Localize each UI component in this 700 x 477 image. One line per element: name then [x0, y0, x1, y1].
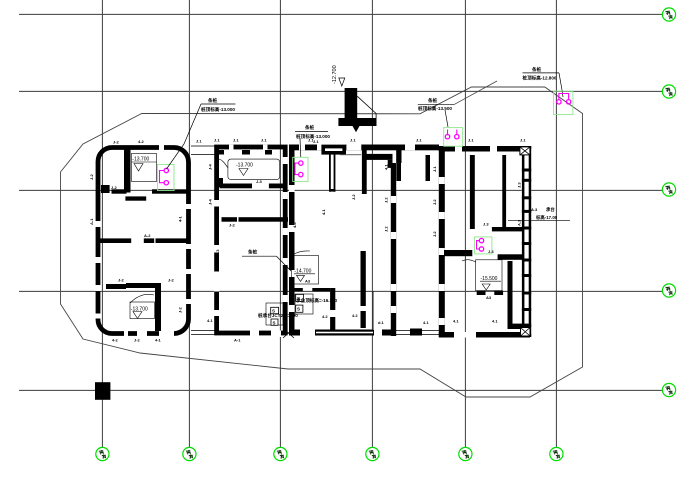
svg-text:J-2: J-2 [178, 306, 183, 313]
svg-text:J-3: J-3 [256, 179, 263, 184]
svg-text:J-2: J-2 [111, 185, 118, 190]
svg-text:J.1: J.1 [350, 138, 356, 143]
svg-text:J.1: J.1 [520, 138, 526, 143]
svg-text:d.1: d.1 [378, 320, 385, 325]
svg-text:4.1: 4.1 [423, 320, 429, 325]
svg-text:4-1: 4-1 [178, 215, 183, 222]
svg-text:J-2: J-2 [134, 338, 141, 343]
svg-text:桩顶标高-13.000: 桩顶标高-13.000 [201, 106, 235, 113]
svg-text:A-1: A-1 [89, 218, 94, 225]
svg-text:桩顶标高-12.800: 桩顶标高-12.800 [523, 75, 557, 82]
svg-text:J.2: J.2 [384, 226, 389, 232]
svg-text:A3: A3 [486, 295, 492, 300]
svg-text:4.5: 4.5 [292, 222, 297, 228]
svg-text:J-2: J-2 [128, 197, 135, 202]
svg-text:J.1: J.1 [308, 138, 314, 143]
svg-text:A-1: A-1 [234, 338, 241, 343]
svg-text:S: S [273, 320, 276, 325]
svg-text:4-2: 4-2 [112, 338, 119, 343]
svg-text:标高-17.00: 标高-17.00 [535, 214, 558, 221]
svg-text:A.3: A.3 [517, 219, 522, 226]
svg-text:-13.700: -13.700 [132, 156, 149, 162]
svg-text:条桩: 条桩 [305, 124, 315, 131]
svg-text:J-2: J-2 [113, 140, 120, 145]
svg-text:J.2: J.2 [432, 199, 437, 205]
svg-text:J.1: J.1 [468, 138, 474, 143]
svg-text:桩承台JCT2@=200: 桩承台JCT2@=200 [258, 312, 298, 319]
svg-text:4.1: 4.1 [384, 164, 389, 170]
svg-text:4.1: 4.1 [321, 209, 326, 215]
svg-text:A.3: A.3 [531, 207, 538, 212]
svg-text:4.1: 4.1 [492, 319, 498, 324]
svg-text:S: S [297, 307, 300, 312]
svg-text:J-2: J-2 [229, 223, 236, 228]
svg-text:J.1: J.1 [416, 138, 422, 143]
svg-text:A-3: A-3 [215, 293, 220, 300]
svg-text:4-2: 4-2 [138, 139, 145, 144]
svg-text:J.3: J.3 [488, 249, 494, 254]
svg-text:条桩: 条桩 [248, 249, 258, 256]
svg-text:A3: A3 [305, 279, 311, 284]
svg-text:J.3: J.3 [517, 182, 522, 188]
svg-text:J.1: J.1 [233, 138, 239, 143]
svg-text:承台: 承台 [546, 206, 555, 213]
svg-text:4.1: 4.1 [453, 319, 459, 324]
svg-text:J-4: J-4 [208, 198, 213, 205]
svg-text:J.2: J.2 [384, 197, 389, 203]
svg-text:J-4: J-4 [208, 163, 213, 170]
svg-text:J-2: J-2 [168, 278, 175, 283]
svg-text:J.3: J.3 [483, 222, 489, 227]
svg-text:承台顶标高=-16.300: 承台顶标高=-16.300 [296, 297, 338, 304]
svg-text:-12.700: -12.700 [332, 65, 338, 84]
svg-text:条桩: 条桩 [208, 97, 218, 104]
svg-text:J.2: J.2 [432, 231, 437, 237]
svg-text:J.1: J.1 [214, 138, 220, 143]
svg-text:条桩: 条桩 [428, 97, 438, 104]
svg-text:J.1: J.1 [432, 166, 437, 172]
svg-text:4.2: 4.2 [352, 313, 358, 318]
svg-text:4.1: 4.1 [207, 318, 213, 323]
svg-text:A-2: A-2 [144, 233, 151, 238]
svg-text:4.2: 4.2 [322, 314, 328, 319]
svg-text:4-1: 4-1 [155, 338, 162, 343]
svg-text:J-2: J-2 [118, 278, 125, 283]
svg-text:J.1: J.1 [261, 138, 267, 143]
svg-text:J.1: J.1 [313, 139, 319, 144]
svg-text:-13.700: -13.700 [236, 163, 253, 169]
svg-text:条桩: 条桩 [532, 66, 542, 73]
svg-text:J-2: J-2 [89, 173, 94, 180]
svg-text:J.2: J.2 [351, 194, 356, 200]
svg-text:A-3: A-3 [215, 249, 220, 256]
svg-text:J.1: J.1 [196, 139, 202, 144]
svg-text:桩顶标高-13.500: 桩顶标高-13.500 [418, 105, 452, 112]
